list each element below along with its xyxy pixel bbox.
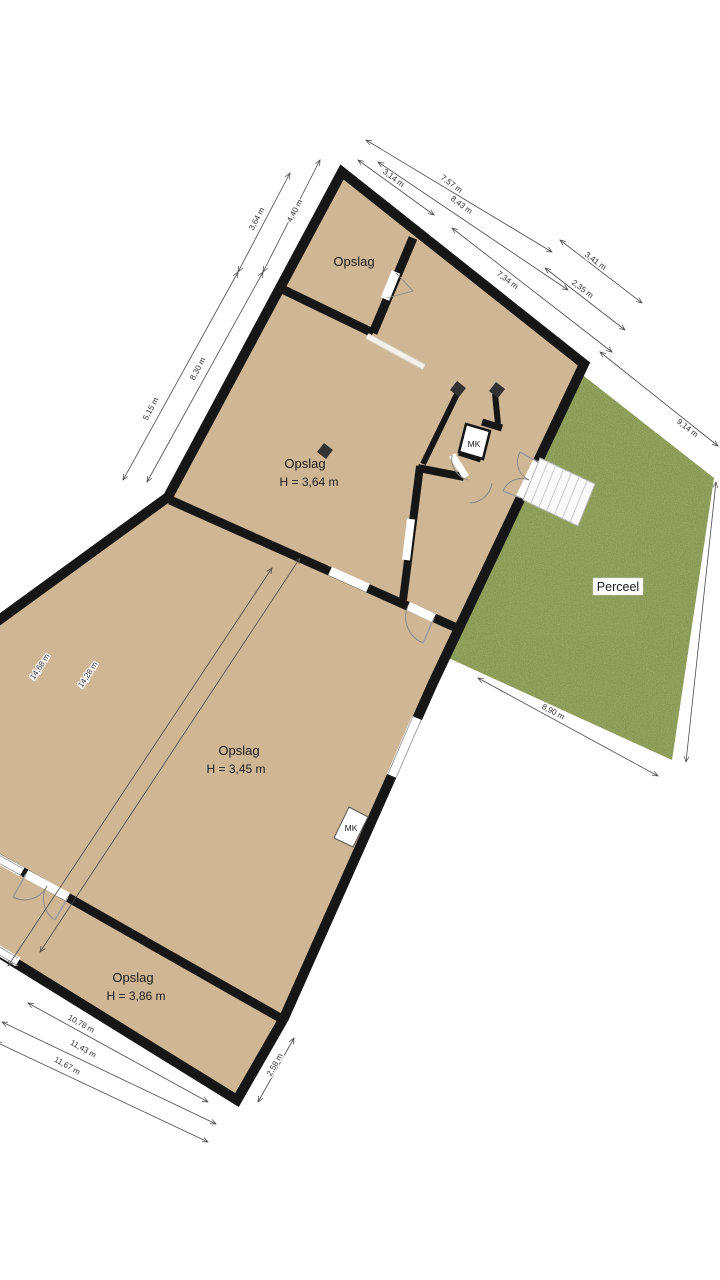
dim-parcel-ne: 9,14 m bbox=[675, 417, 700, 439]
room-height-middle: H = 3,64 m bbox=[279, 475, 338, 489]
dim-top-outer-2: 3,41 m bbox=[583, 250, 608, 272]
room-height-long: H = 3,45 m bbox=[206, 762, 265, 776]
room-label-bottom: Opslag bbox=[112, 970, 153, 985]
parcel-label-group: Perceel bbox=[593, 578, 643, 595]
dim-bottom-sw-1: 10,78 m bbox=[66, 1013, 96, 1035]
parcel-label: Perceel bbox=[597, 580, 639, 594]
dim-left-wall-upper: 4,40 m bbox=[285, 198, 305, 224]
mk-entry-label: MK bbox=[468, 439, 481, 449]
room-label-top: Opslag bbox=[333, 254, 374, 269]
room-label-long: Opslag bbox=[218, 743, 259, 758]
dim-top-inner-2: 7,34 m bbox=[495, 269, 520, 291]
wall-column-link-east bbox=[495, 394, 498, 424]
dim-bottom-sw-2: 11,43 m bbox=[69, 1038, 98, 1060]
room-height-bottom: H = 3,86 m bbox=[106, 989, 165, 1003]
floorplan-page: MK MK Opslag Opslag H = 3,64 m Opslag H … bbox=[0, 0, 720, 1280]
floorplan-drawing: MK MK Opslag Opslag H = 3,64 m Opslag H … bbox=[0, 0, 720, 1280]
dim-left-outer-upper: 3,64 m bbox=[247, 206, 267, 232]
entry-room-west-opening bbox=[406, 519, 411, 560]
room-label-middle: Opslag bbox=[284, 456, 325, 471]
mk-wall-label: MK bbox=[345, 823, 358, 833]
